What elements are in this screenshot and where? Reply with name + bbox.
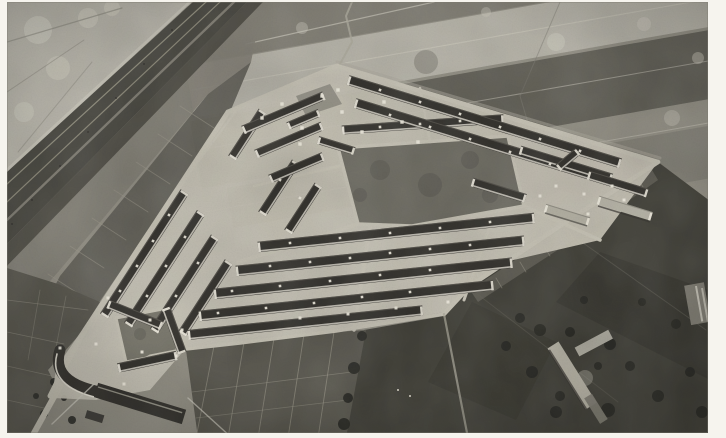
vignette-overlay xyxy=(7,2,708,433)
photo-area xyxy=(7,0,726,438)
border-top xyxy=(0,0,726,2)
border-bottom xyxy=(0,433,726,438)
border-left xyxy=(0,0,7,438)
screenshot-root: Black-and-white oblique aerial photograp… xyxy=(0,0,726,438)
aerial-photograph: Black-and-white oblique aerial photograp… xyxy=(0,0,726,438)
border-right xyxy=(708,0,726,438)
